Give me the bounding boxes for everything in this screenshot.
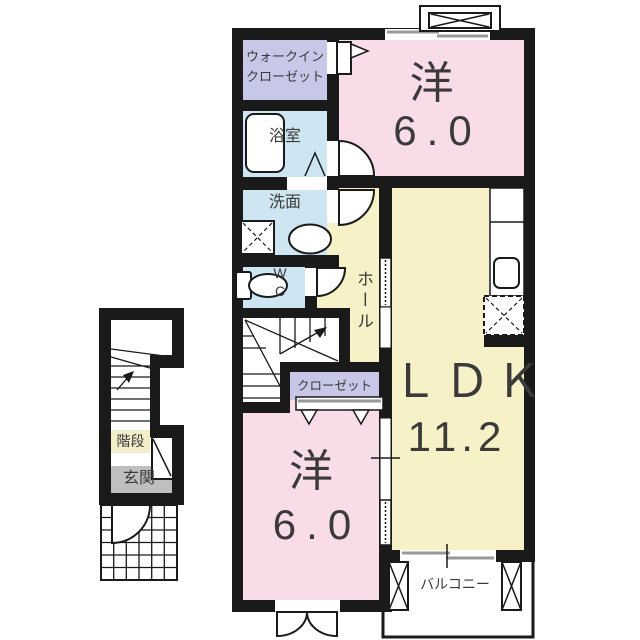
walk-in-closet-label-line2: クローゼット <box>243 70 327 83</box>
bath-door-opening <box>287 177 327 190</box>
vent-box-icon <box>420 6 500 31</box>
bathroom-label: 浴室 <box>243 129 327 145</box>
closet-label: クローゼット <box>290 380 379 393</box>
washroom-door-opening <box>327 190 339 223</box>
floor-plan: ウォークイン クローゼット 浴室 洗面 W C ホール クローゼット 洋 6.0… <box>0 0 640 640</box>
kitchen-sink-icon <box>494 258 519 288</box>
walk-in-closet-label-line1: ウォークイン <box>243 50 327 63</box>
wc-label-line2: C <box>262 284 298 298</box>
bedroom-bottom-floor <box>243 400 379 600</box>
washbasin-icon <box>289 225 331 254</box>
closet-door-rail <box>296 397 383 410</box>
stairs-label: 階段 <box>111 434 150 448</box>
washer-icon <box>241 221 274 254</box>
ldk-label: ＬＤＫ <box>392 358 518 404</box>
hall-ldk-slider-opening <box>380 307 391 348</box>
entrance-approach-tiles <box>101 505 177 580</box>
bedroom-top-label: 洋 <box>339 62 524 106</box>
balcony-label: バルコニー <box>408 577 502 591</box>
entrance-step <box>111 453 150 466</box>
bedroom-bottom-size: 6.0 <box>249 504 385 546</box>
bedroom-bottom-label: 洋 <box>243 450 379 494</box>
wc-label-line1: W <box>262 266 298 280</box>
double-door-left-arc <box>277 612 307 636</box>
bedroom-top-door-opening <box>327 141 339 176</box>
kitchen-counter-icon <box>490 188 524 296</box>
ldk-size: 11.2 <box>394 416 520 458</box>
bedroom-ldk-slider-opening <box>380 418 391 500</box>
bedroom-top-size: 6.0 <box>345 110 530 152</box>
balcony-panel-left-icon <box>389 562 408 610</box>
double-door-right-arc <box>307 612 337 636</box>
entrance-label: 玄関 <box>111 471 167 487</box>
hall-label: ホール <box>355 270 372 333</box>
balcony-panel-right-icon <box>502 562 521 610</box>
stairs-floor-lower <box>243 362 280 402</box>
double-door-opening <box>275 600 340 612</box>
wc-door-opening <box>305 268 317 296</box>
washroom-label: 洗面 <box>243 195 327 211</box>
refrigerator-space-icon <box>484 296 524 335</box>
